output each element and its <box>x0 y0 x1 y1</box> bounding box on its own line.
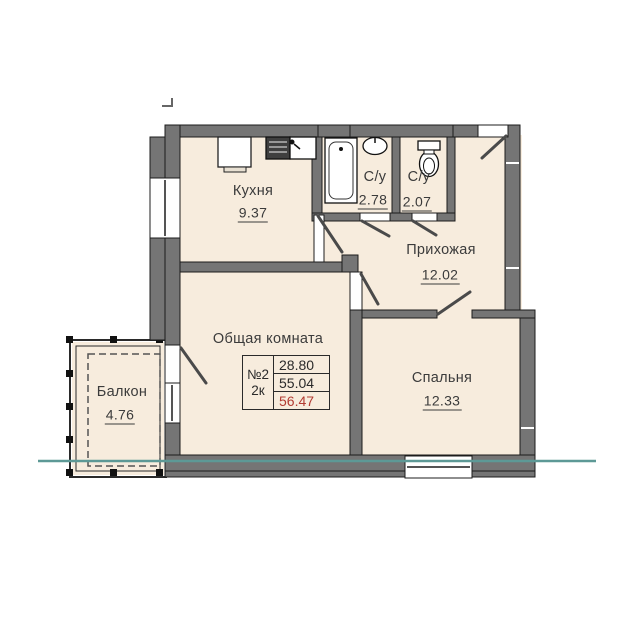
floor-plan: Кухня 9.37 С/у 2.78 С/у 2.07 Прихожая 12… <box>0 0 619 619</box>
bathroom-label: С/у <box>364 169 387 185</box>
washbasin-icon <box>363 138 387 155</box>
apartment-areas-cells: 28.80 55.04 56.47 <box>274 356 329 409</box>
kitchen-sink-icon <box>266 137 316 159</box>
bathroom-door-opening <box>360 213 390 221</box>
living-hall-wall <box>350 310 362 455</box>
balcony-area: 4.76 <box>105 407 135 424</box>
hallway-label: Прихожая <box>406 242 476 258</box>
floor-plan-drawing <box>0 0 619 619</box>
wc-east-wall <box>447 137 455 215</box>
bathroom-south-wall-2 <box>390 213 412 221</box>
top-wall <box>165 125 520 137</box>
living-room-door-opening <box>350 272 362 310</box>
apartment-rooms-count: 2к <box>251 383 264 399</box>
bottom-wall <box>165 455 535 477</box>
bathroom-south-wall-3 <box>437 213 455 221</box>
kitchen-living-wall <box>180 262 358 272</box>
apartment-number: №2 <box>247 367 269 383</box>
total-area-value: 56.47 <box>274 392 329 409</box>
apartment-area-value: 55.04 <box>274 374 329 392</box>
bathroom-divider-wall <box>392 137 400 215</box>
balcony-label: Балкон <box>97 384 147 400</box>
bathtub-icon <box>325 138 357 203</box>
kitchen-label: Кухня <box>233 183 273 199</box>
wc-area: 2.07 <box>402 194 432 211</box>
reference-tick <box>162 98 172 106</box>
living-area-value: 28.80 <box>274 356 329 374</box>
stove-icon <box>218 137 251 172</box>
right-wall-upper <box>505 125 520 317</box>
wc-label: С/у <box>408 169 431 185</box>
bathroom-area: 2.78 <box>358 192 388 209</box>
hall-bedroom-wall-1 <box>362 310 437 318</box>
hallway-area: 12.02 <box>421 267 460 284</box>
wall-corner-block <box>342 255 358 272</box>
bedroom-label: Спальня <box>412 370 472 386</box>
hall-bedroom-wall-2 <box>472 310 535 318</box>
balcony-door-opening <box>165 345 180 383</box>
wc-door-opening <box>412 213 437 221</box>
apartment-info-table: №2 2к 28.80 55.04 56.47 <box>242 355 330 410</box>
living-room-label: Общая комната <box>213 331 323 347</box>
kitchen-area: 9.37 <box>238 205 268 222</box>
apartment-number-cell: №2 2к <box>243 356 274 409</box>
entrance-door-opening <box>478 125 508 137</box>
bedroom-area: 12.33 <box>423 393 462 410</box>
right-wall-lower <box>520 310 535 477</box>
